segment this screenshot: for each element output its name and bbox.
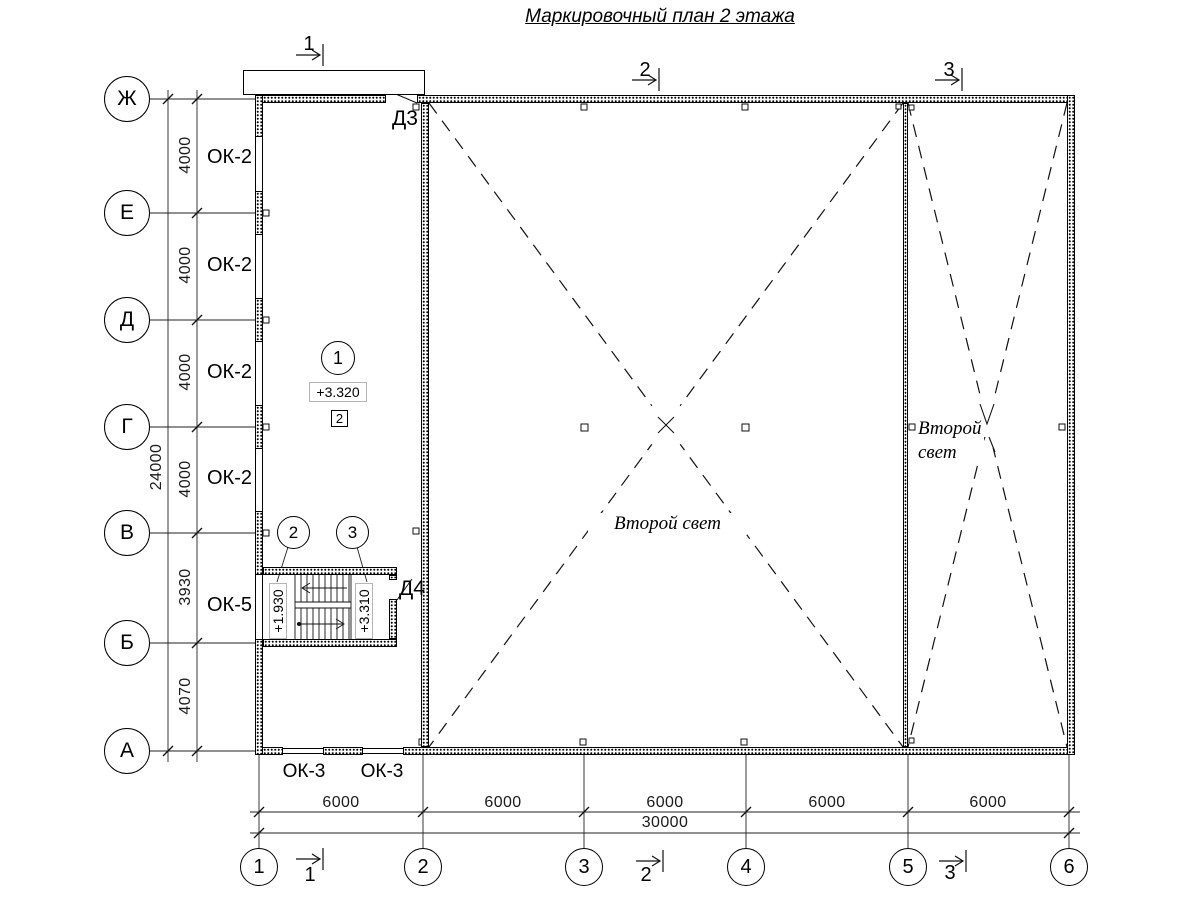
stair-enclosure-bottom-wall [263,639,397,647]
internal-stair-treads [295,575,351,641]
window-label-ok2-3: ОК-2 [207,361,252,384]
axis-label: 3 [578,856,589,879]
axis-bubble-row-g: Г [104,404,150,450]
external-stair-outline [243,70,425,95]
axis-lines [150,99,1069,848]
elevation-mark-stair-low: +1.930 [269,583,287,639]
window-ok2-3 [255,342,263,405]
axis-label: 2 [417,856,428,879]
left-wall-pier-v [255,511,263,575]
top-wall-main-segment [417,95,1075,103]
dim-left-5: 3930 [177,557,195,617]
door-leaf-lines [391,92,417,600]
axis-label: Е [120,201,134,225]
window-label-ok2-4: ОК-2 [207,467,252,490]
stair-enclosure-right-wall [389,599,397,639]
axis-bubble-col-5: 5 [889,848,927,886]
axis-bubble-row-zh: Ж [104,76,150,122]
bottom-wall-segment-3 [403,747,1075,755]
section-mark-top-2: 2 [634,59,656,82]
stair-flight-label: 3 [348,523,357,543]
void-diagonals-center [429,103,903,747]
floor-plan-drawing: Маркировочный план 2 этажа Ж Е Д Г В Б А… [0,0,1200,900]
axis-bubble-col-4: 4 [727,848,765,886]
axis-label: Г [121,415,132,439]
stair-enclosure-corner-block [389,575,397,580]
section-mark-bottom-3: 3 [939,862,961,885]
window-label-ok3-2: ОК-3 [359,761,405,783]
second-light-text-center: Второй свет [588,513,747,535]
bottom-wall-segment-2 [323,747,363,755]
stair-flight-label: 2 [289,523,298,543]
elevation-mark-main: +3.320 [309,382,367,402]
axis-label: 6 [1063,856,1074,879]
top-wall-left-segment [255,95,386,103]
axis-label: А [120,739,134,763]
window-ok2-2 [255,235,263,298]
axis-bubble-row-a: А [104,728,150,774]
axis-label: Б [120,631,134,655]
window-ok3-2 [363,748,403,754]
detail-circle-1: 1 [321,341,355,375]
elevation-value: +1.930 [270,589,286,632]
axis-bubble-row-v: В [104,510,150,556]
dim-bottom-2: 6000 [463,794,543,812]
dim-bottom-4: 6000 [787,794,867,812]
axis-bubble-col-3: 3 [565,848,603,886]
axis-bubble-col-6: 6 [1050,848,1088,886]
axis-bubble-row-d: Д [104,297,150,343]
axis-bubble-col-2: 2 [404,848,442,886]
dim-bottom-total: 30000 [625,814,705,832]
section-mark-bottom-2: 2 [635,864,657,887]
dim-left-total: 24000 [148,432,166,502]
left-wall-pier-g [255,405,263,449]
window-ok3-1 [283,748,323,754]
axis-label: 1 [253,856,264,879]
section-mark-top-3: 3 [938,59,960,82]
window-ok2-1 [255,137,263,191]
second-light-text-right: Второй свет [916,417,984,465]
right-wall [1067,95,1075,755]
axis-bubble-row-b: Б [104,620,150,666]
dim-left-6: 4070 [177,666,195,726]
window-label-ok2-1: ОК-2 [207,146,252,169]
window-label-ok2-2: ОК-2 [207,254,252,277]
interior-wall-axis5 [903,103,908,747]
detail-circle-label: 1 [333,348,343,369]
dim-left-4: 4000 [177,449,195,509]
interior-wall-axis2 [421,103,429,747]
left-wall-pier-b-a [255,639,263,755]
left-wall-pier-d [255,298,263,342]
dim-left-1: 4000 [177,125,195,185]
stair-flight-circle-3: 3 [336,516,369,549]
stair-flight-circle-2: 2 [277,516,310,549]
dim-left-3: 4000 [177,342,195,402]
axis-bubble-row-e: Е [104,190,150,236]
left-wall-pier-zh [255,95,263,137]
dim-bottom-1: 6000 [301,794,381,812]
dim-left-2: 4000 [177,235,195,295]
axis-label: Д [120,308,134,332]
node-square-2: 2 [331,410,348,427]
elevation-mark-stair-high: +3.310 [355,583,373,639]
page-title: Маркировочный план 2 этажа [440,6,880,28]
axis-bubble-col-1: 1 [240,848,278,886]
section-mark-bottom-1: 1 [299,864,321,887]
window-ok5 [255,575,263,639]
axis-label: Ж [117,87,136,111]
node-square-label: 2 [336,411,343,426]
axis-label: 4 [740,856,751,879]
section-mark-top-1: 1 [298,33,320,56]
leader-lines [277,547,367,582]
dimension-ticks [163,94,1074,838]
axis-label: В [120,521,134,545]
dim-bottom-5: 6000 [948,794,1028,812]
elevation-value: +3.320 [316,384,359,400]
left-wall-pier-e [255,191,263,235]
elevation-value: +3.310 [356,589,372,632]
window-label-ok3-1: ОК-3 [281,761,327,783]
axis-label: 5 [902,856,913,879]
dim-bottom-3: 6000 [625,794,705,812]
door-label-d4: Д4 [399,577,425,601]
door-label-d3: Д3 [392,107,418,131]
stair-enclosure-top-wall [263,567,397,575]
window-label-ok5: ОК-5 [207,594,252,617]
window-ok2-4 [255,449,263,511]
